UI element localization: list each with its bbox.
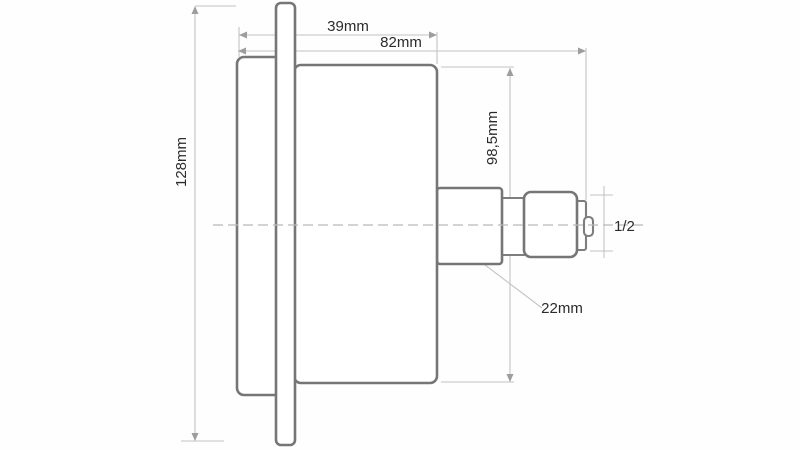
label-82mm: 82mm [380,34,422,51]
mounting-flange [276,3,295,445]
gauge-technical-drawing: 39mm 82mm 98,5mm 128mm 22mm 1/2 [0,0,800,450]
arrow-39mm-right-icon [429,32,437,39]
gauge-case [294,65,437,383]
label-22mm: 22mm [541,300,583,317]
arrow-128mm-down-icon [192,433,199,441]
arrow-98-5mm-down-icon [507,374,514,382]
arrow-82mm-right-icon [578,48,586,55]
label-128mm: 128mm [173,137,190,187]
label-39mm: 39mm [327,18,369,35]
arrow-39mm-left-icon [239,32,247,39]
connector-stub [500,198,526,255]
arrow-98-5mm-up-icon [507,68,514,76]
gauge-neck [437,188,502,264]
arrow-128mm-up-icon [192,6,199,14]
gauge-parts [237,3,593,445]
technical-drawing-canvas: 39mm 82mm 98,5mm 128mm 22mm 1/2 [0,0,800,450]
label-98-5mm: 98,5mm [484,111,501,165]
thread-tip [584,217,593,236]
label-thread-size: 1/2 [614,218,635,235]
